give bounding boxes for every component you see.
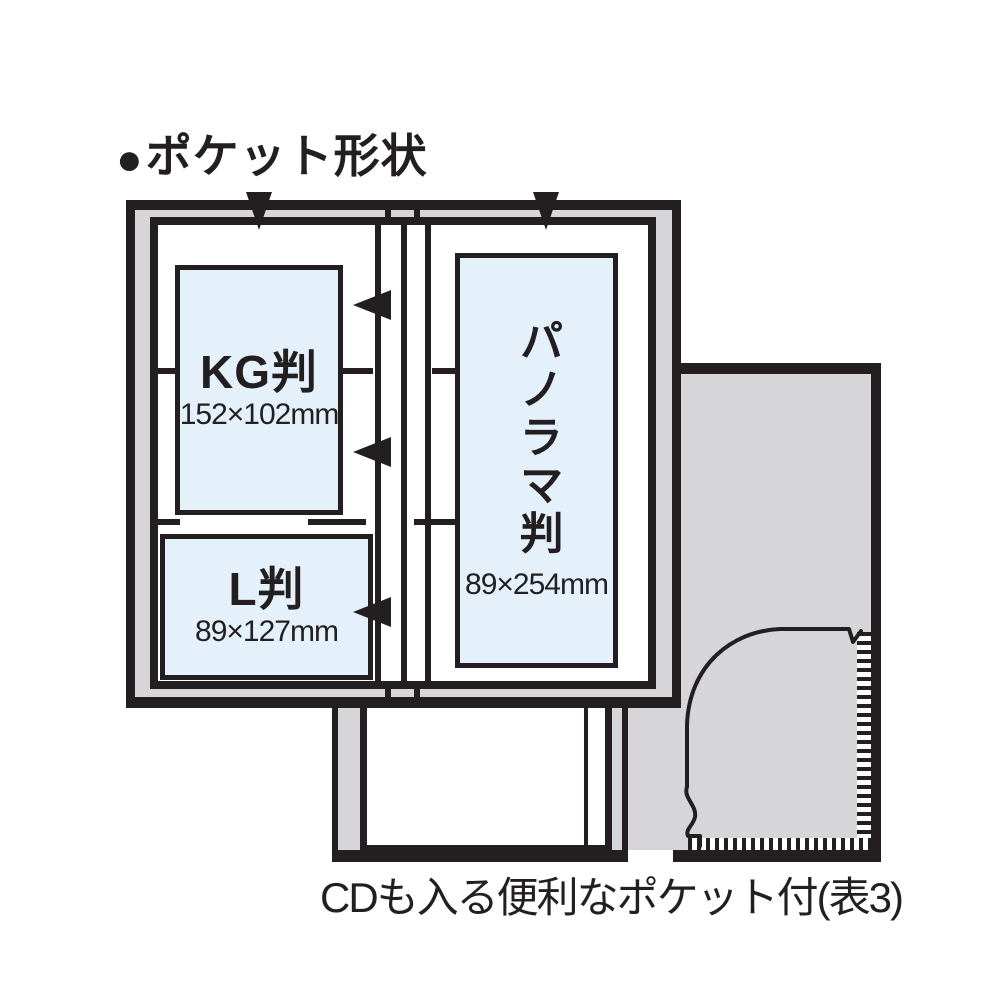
seam-tick: [157, 368, 178, 374]
left-arrow-icon: [353, 290, 391, 320]
pocket-panorama-size: 89×254mm: [465, 568, 608, 603]
pocket-panorama: パノラマ判 89×254mm: [455, 253, 618, 668]
pocket-shape-diagram: ●ポケット形状 KG判 152×102mm L判 89×127mm パノラマ判 …: [0, 0, 1000, 1000]
page-title-text: ポケット形状: [146, 130, 428, 182]
seam-tick: [308, 519, 366, 525]
left-arrow-icon: [353, 437, 391, 467]
cover-hinge-divider: [414, 682, 420, 700]
pocket-kg: KG判 152×102mm: [175, 265, 343, 515]
cover-hinge-divider: [414, 203, 420, 222]
pocket-l-label: L判: [228, 564, 304, 615]
pocket-kg-label: KG判: [200, 347, 318, 398]
cd-pocket-caption: CDも入る便利なポケット付(表3): [320, 864, 902, 925]
down-arrow-icon: [533, 192, 559, 230]
seam-tick: [432, 368, 457, 374]
bottom-flap-seam-line: [584, 708, 588, 845]
pocket-panorama-label: パノラマ判: [511, 318, 561, 558]
down-arrow-icon: [246, 192, 272, 230]
seam-tick: [152, 519, 180, 525]
spine-line-right: [425, 225, 431, 681]
bottom-flap-pocket-area: [367, 708, 605, 845]
seam-tick: [343, 368, 373, 374]
page-title: ●ポケット形状: [116, 120, 428, 186]
seam-tick: [414, 519, 455, 525]
pocket-l: L判 89×127mm: [160, 534, 373, 680]
cover-hinge-divider: [385, 203, 391, 222]
spine-line-center: [401, 225, 407, 681]
left-arrow-icon: [353, 597, 391, 627]
pocket-l-size: 89×127mm: [195, 615, 338, 650]
pocket-kg-size: 152×102mm: [180, 398, 339, 433]
bullet-icon: ●: [116, 135, 144, 184]
cover-hinge-divider: [385, 682, 391, 700]
